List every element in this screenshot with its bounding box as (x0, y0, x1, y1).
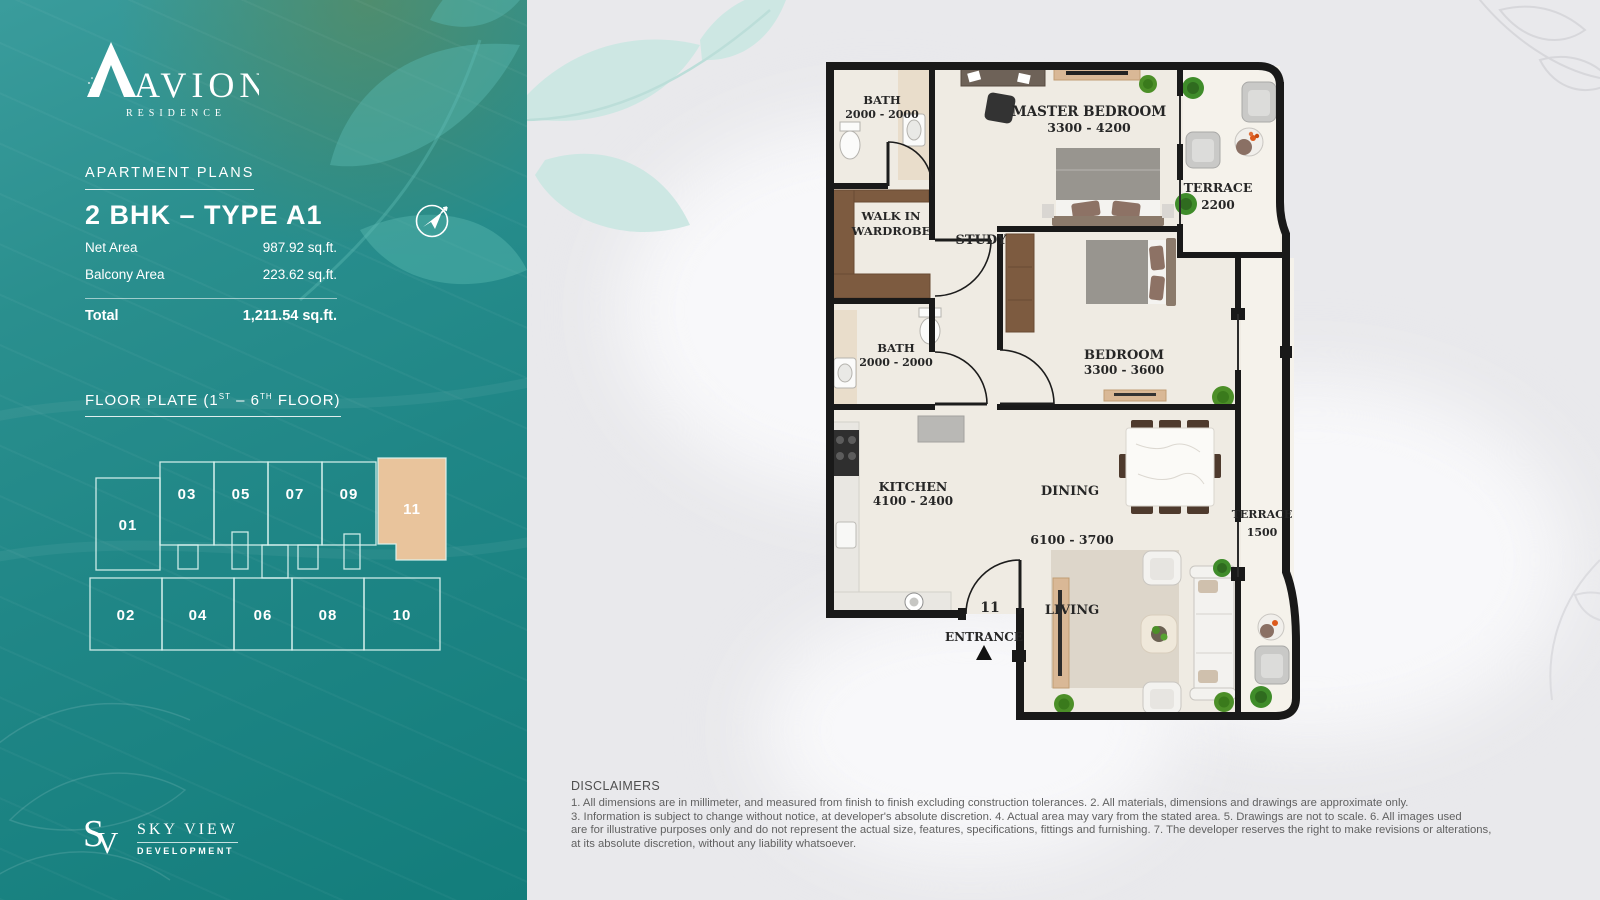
plate-core-notch (344, 534, 360, 569)
logo-peak-icon (87, 42, 136, 97)
line-leaf-icon (1472, 0, 1600, 90)
plate-label-06: 06 (254, 607, 273, 624)
bedroom-label: BEDROOM (1084, 348, 1164, 363)
floor-plate-diagram: 01 03 05 07 09 11 02 04 06 08 10 (82, 448, 462, 663)
developer-text: SKY VIEW DEVELOPMENT (137, 821, 238, 856)
floor-plan: BATH 2000 - 2000 STUDY MASTER BEDROOM 33… (818, 52, 1310, 732)
armchair-icon (1143, 551, 1181, 585)
sv-monogram-icon: S V (83, 812, 127, 864)
developer-divider (137, 842, 238, 843)
net-area-label: Net Area (85, 240, 138, 255)
terrace-right-dim: 1500 (1247, 526, 1278, 539)
plate-core-notch (178, 545, 198, 569)
plate-label-01: 01 (119, 517, 138, 534)
stove-icon (833, 430, 859, 476)
bath2-tiled-area (831, 310, 857, 404)
left-info-panel: AVION RESIDENCE APARTMENT PLANS 2 BHK – … (0, 0, 527, 900)
disclaimer-line: 3. Information is subject to change with… (571, 811, 1571, 825)
net-area-value: 987.92 sq.ft. (263, 240, 337, 255)
balcony-area-label: Balcony Area (85, 267, 165, 282)
net-area-row: Net Area 987.92 sq.ft. (85, 240, 337, 255)
coffee-table (1141, 615, 1177, 653)
total-label: Total (85, 308, 119, 324)
bath1-label: BATH (863, 93, 901, 107)
floor-plate-title-part: – 6 (231, 392, 260, 409)
dining-label: DINING (1041, 484, 1099, 499)
sofa (1190, 566, 1236, 700)
brand-name: AVION (134, 65, 259, 105)
kitchen-dim: 4100 - 2400 (873, 494, 953, 508)
monogram-v: V (96, 825, 118, 861)
terrace-top-dim: 2200 (1201, 198, 1234, 212)
washer-icon (905, 593, 923, 611)
terrace-armchair-icon (1186, 132, 1220, 168)
bath1-dim: 2000 - 2000 (845, 108, 919, 121)
master-bedroom-dim: 3300 - 4200 (1047, 120, 1131, 135)
floor-plate-sup: ST (219, 392, 231, 401)
dining-set (1119, 420, 1221, 514)
developer-division: DEVELOPMENT (137, 846, 238, 856)
area-table: Net Area 987.92 sq.ft. Balcony Area 223.… (85, 240, 337, 294)
balcony-area-value: 223.62 sq.ft. (263, 267, 337, 282)
plate-core-notch (298, 545, 318, 569)
entrance-label: ENTRANCE (945, 630, 1023, 644)
plate-unit-09 (322, 462, 376, 545)
plate-label-03: 03 (178, 486, 197, 503)
toilet-icon (840, 122, 860, 159)
balcony-area-row: Balcony Area 223.62 sq.ft. (85, 267, 337, 282)
kitchen-label: KITCHEN (879, 479, 948, 494)
tv-icon (1066, 71, 1128, 75)
disclaimer-line: are for illustrative purposes only and d… (571, 824, 1571, 838)
total-value: 1,211.54 sq.ft. (243, 308, 337, 324)
brand-logo: AVION RESIDENCE (84, 40, 259, 127)
plate-unit-03 (160, 462, 214, 545)
bedroom-dim: 3300 - 3600 (1084, 363, 1164, 377)
living-label: LIVING (1045, 603, 1099, 618)
kitchen-sink-icon (836, 522, 856, 548)
section-title: APARTMENT PLANS (85, 165, 254, 190)
terrace-table-icon (1235, 128, 1263, 156)
plate-label-02: 02 (117, 607, 136, 624)
terrace-right-label: TERRACE (1232, 508, 1293, 521)
bath2-label: BATH (877, 341, 915, 355)
brochure-page: AVION RESIDENCE APARTMENT PLANS 2 BHK – … (0, 0, 1600, 900)
divider-line (85, 298, 337, 299)
disclaimers-title: DISCLAIMERS (571, 779, 1571, 793)
terrace-table-icon (1258, 614, 1284, 640)
unit-type-title: 2 BHK – TYPE A1 (85, 200, 323, 231)
plate-label-09: 09 (340, 486, 359, 503)
plate-core-notch (262, 545, 288, 578)
plate-core-notch (232, 532, 248, 569)
living-dim: 6100 - 3700 (1030, 532, 1114, 547)
dresser-tv-icon (1114, 393, 1156, 396)
bath2-dim: 2000 - 2000 (859, 356, 933, 369)
north-compass-icon (413, 200, 453, 245)
terrace-armchair-icon (1242, 82, 1276, 122)
plate-label-08: 08 (319, 607, 338, 624)
plate-label-11: 11 (403, 501, 421, 518)
terrace-top-label: TERRACE (1184, 180, 1253, 195)
wardrobe-label-1: WALK IN (860, 209, 921, 223)
tv-console-living (1053, 578, 1069, 688)
disclaimer-line: at its absolute discretion, without any … (571, 838, 1571, 852)
plate-label-05: 05 (232, 486, 251, 503)
developer-logo: S V SKY VIEW DEVELOPMENT (83, 812, 238, 864)
study-label: STUDY (956, 233, 1008, 248)
developer-name: SKY VIEW (137, 821, 238, 839)
floor-plate-sup: TH (260, 392, 273, 401)
sink-icon (834, 358, 856, 388)
floor-plate-title-part: FLOOR) (273, 392, 341, 409)
unit-number-label: 11 (980, 600, 999, 616)
bedroom-wardrobe-unit (1006, 234, 1034, 332)
master-bed (1042, 148, 1174, 226)
brand-subtitle: RESIDENCE (126, 108, 226, 119)
disclaimer-line: 1. All dimensions are in millimeter, and… (571, 797, 1571, 811)
plate-label-04: 04 (189, 607, 208, 624)
entrance-arrow-icon (976, 645, 992, 660)
total-area-row: Total 1,211.54 sq.ft. (85, 308, 337, 324)
floor-plate-title-part: FLOOR PLATE (1 (85, 392, 219, 409)
disclaimers-block: DISCLAIMERS 1. All dimensions are in mil… (571, 779, 1571, 851)
terrace-armchair-icon (1255, 646, 1289, 684)
floor-plate-title: FLOOR PLATE (1ST – 6TH FLOOR) (85, 392, 341, 417)
armchair-icon (1143, 682, 1181, 714)
wardrobe-label-2: WARDROBE (851, 224, 931, 238)
line-leaf-icon (1550, 560, 1600, 700)
plate-label-07: 07 (286, 486, 305, 503)
master-bedroom-label: MASTER BEDROOM (1012, 104, 1167, 120)
plate-label-10: 10 (393, 607, 412, 624)
bedroom-bed (1086, 238, 1176, 306)
plate-unit-07 (268, 462, 322, 545)
